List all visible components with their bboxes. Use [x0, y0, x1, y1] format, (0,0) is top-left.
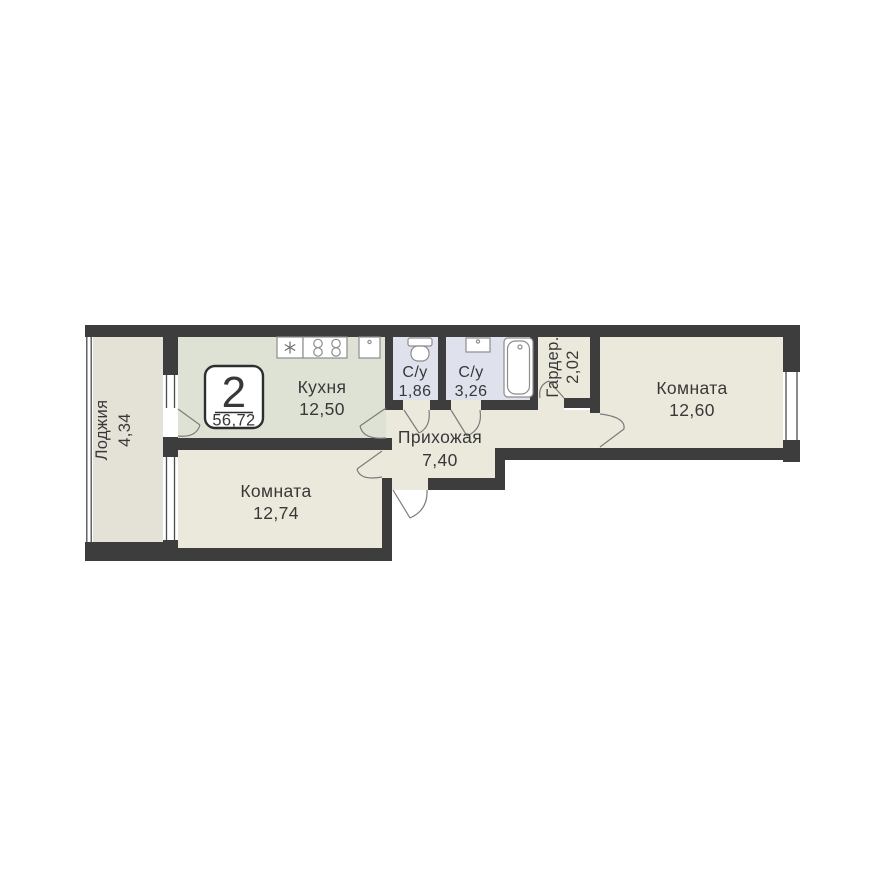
badge-rooms-count: 2 — [222, 368, 247, 417]
stove-burners-icon — [303, 337, 347, 358]
loggia-area-value: 4,34 — [116, 413, 134, 447]
kitchen-area-value: 12,50 — [299, 399, 345, 419]
wardrobe-area-value: 2,02 — [564, 350, 582, 384]
toilet-icon — [408, 338, 432, 361]
bathroom-small-area-value: 1,86 — [399, 383, 432, 400]
badge-total-area: 56,72 — [212, 412, 255, 430]
window-glazing — [163, 457, 178, 540]
appliance-icon — [359, 337, 380, 358]
hallway-label: Прихожая — [398, 427, 482, 447]
loggia-label: Лоджия — [93, 400, 111, 461]
bathroom-small-label: С/у — [402, 364, 427, 381]
room-bottom-area-value: 12,74 — [253, 503, 299, 523]
room-right-label: Комната — [656, 378, 727, 398]
doorway-floor — [382, 450, 392, 478]
doorway-floor — [451, 400, 481, 410]
doorway-floor — [538, 398, 564, 410]
room-bottom-label: Комната — [240, 481, 311, 501]
doorway-floor — [392, 478, 428, 490]
apartment-badge: 2 56,72 — [205, 366, 263, 430]
door-swing-icon — [393, 490, 427, 518]
doorway-floor — [590, 413, 600, 448]
wardrobe-label: Гардер. — [544, 336, 562, 397]
floor-plan: Лоджия 4,34 Кухня 12,50 С/у 1,86 С/у 3,2… — [0, 0, 886, 886]
snowflake-sink-icon — [277, 337, 303, 358]
washbasin-icon — [466, 338, 490, 352]
kitchen-label: Кухня — [298, 377, 347, 397]
window-glazing — [163, 375, 178, 408]
window-glazing — [783, 372, 800, 440]
room-right-area-value: 12,60 — [669, 400, 715, 420]
window-glazing — [85, 337, 93, 542]
bathroom-large-label: С/у — [458, 364, 483, 381]
doorway-floor — [403, 400, 430, 410]
bathtub-icon — [504, 338, 533, 397]
bathroom-large-area-value: 3,26 — [455, 383, 488, 400]
hallway-area-value: 7,40 — [422, 450, 458, 470]
